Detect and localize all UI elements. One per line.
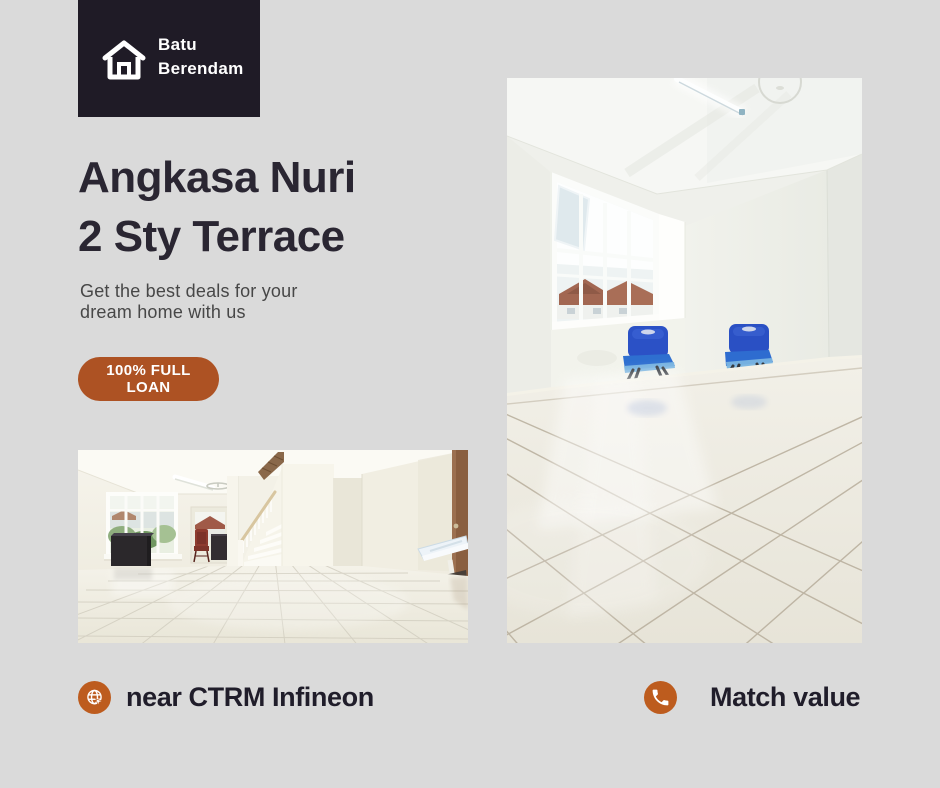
hallway xyxy=(334,478,362,568)
cabinet xyxy=(111,533,154,566)
phone-icon xyxy=(644,681,677,714)
column xyxy=(227,476,239,570)
page-title-line2: 2 Sty Terrace xyxy=(78,207,356,266)
feature-contact: Match value xyxy=(644,681,860,714)
stair-wall xyxy=(282,464,334,568)
feature-contact-label: Match value xyxy=(710,682,860,713)
page-title-line1: Angkasa Nuri xyxy=(78,148,356,207)
brand-name-line1: Batu xyxy=(158,33,244,57)
sideboard xyxy=(211,534,228,560)
photo-empty-room xyxy=(507,78,862,643)
page-title: Angkasa Nuri 2 Sty Terrace xyxy=(78,148,356,266)
flyer-canvas: Batu Berendam Angkasa Nuri 2 Sty Terrace… xyxy=(0,0,940,788)
tagline-line1: Get the best deals for your xyxy=(80,281,298,302)
tagline: Get the best deals for your dream home w… xyxy=(80,281,298,323)
brand-badge: Batu Berendam xyxy=(78,0,260,117)
tagline-line2: dream home with us xyxy=(80,302,298,323)
door-frame xyxy=(452,450,468,577)
house-icon xyxy=(100,36,148,84)
brand-name-line2: Berendam xyxy=(158,57,244,81)
full-loan-badge[interactable]: 100% FULL LOAN xyxy=(78,357,219,401)
feature-location: near CTRM Infineon xyxy=(78,681,374,714)
brand-name: Batu Berendam xyxy=(158,33,244,81)
globe-icon xyxy=(78,681,111,714)
right-wall xyxy=(827,154,862,360)
photo-living-room xyxy=(78,450,468,643)
feature-location-label: near CTRM Infineon xyxy=(126,682,374,713)
